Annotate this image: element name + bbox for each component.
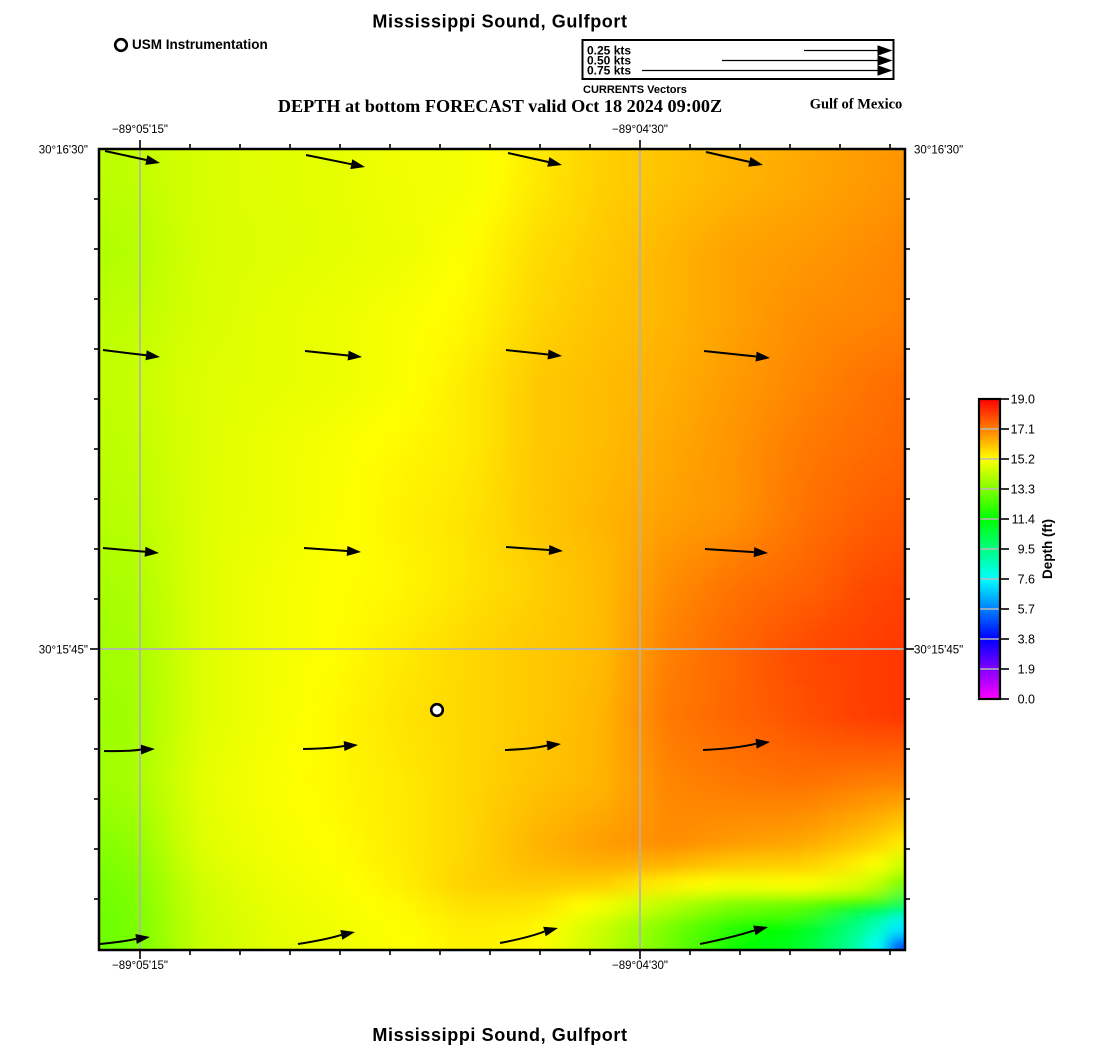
svg-text:DEPTH at bottom FORECAST valid: DEPTH at bottom FORECAST valid Oct 18 20… — [278, 96, 722, 116]
svg-text:Mississippi Sound, Gulfport: Mississippi Sound, Gulfport — [372, 1025, 627, 1045]
svg-text:30°15'45": 30°15'45" — [39, 645, 88, 657]
svg-text:30°15'45": 30°15'45" — [914, 645, 963, 657]
svg-text:11.4: 11.4 — [1012, 513, 1035, 527]
svg-text:0.75 kts: 0.75 kts — [587, 64, 631, 78]
svg-text:CURRENTS Vectors: CURRENTS Vectors — [583, 84, 687, 96]
svg-text:19.0: 19.0 — [1011, 393, 1035, 407]
svg-text:Mississippi Sound, Gulfport: Mississippi Sound, Gulfport — [372, 12, 627, 32]
svg-text:17.1: 17.1 — [1011, 423, 1035, 437]
svg-text:Gulf of Mexico: Gulf of Mexico — [810, 97, 903, 113]
svg-text:1.9: 1.9 — [1018, 663, 1035, 677]
svg-text:15.2: 15.2 — [1011, 453, 1035, 467]
svg-text:−89°05'15": −89°05'15" — [112, 124, 168, 136]
svg-text:5.7: 5.7 — [1018, 603, 1035, 617]
svg-text:7.6: 7.6 — [1018, 573, 1035, 587]
svg-text:13.3: 13.3 — [1011, 483, 1035, 497]
svg-text:30°16'30": 30°16'30" — [39, 145, 88, 157]
svg-text:USM Instrumentation: USM Instrumentation — [132, 37, 268, 52]
svg-text:−89°04'30": −89°04'30" — [612, 960, 668, 972]
svg-text:Depth (ft): Depth (ft) — [1040, 519, 1055, 579]
svg-text:3.8: 3.8 — [1018, 633, 1035, 647]
svg-text:9.5: 9.5 — [1018, 543, 1035, 557]
svg-text:30°16'30": 30°16'30" — [914, 145, 963, 157]
svg-text:−89°05'15": −89°05'15" — [112, 960, 168, 972]
svg-text:−89°04'30": −89°04'30" — [612, 124, 668, 136]
svg-text:0.0: 0.0 — [1018, 693, 1035, 707]
